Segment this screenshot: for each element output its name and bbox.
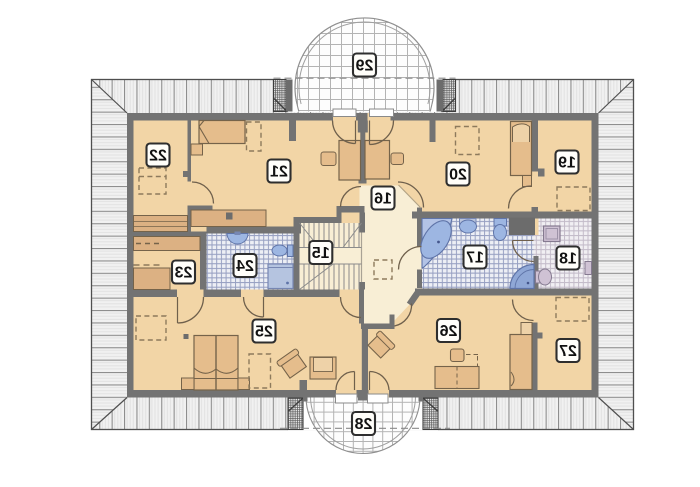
svg-text:16: 16 bbox=[374, 191, 392, 208]
svg-text:29: 29 bbox=[356, 58, 374, 75]
svg-text:22: 22 bbox=[149, 148, 167, 165]
svg-text:26: 26 bbox=[440, 323, 458, 340]
svg-text:15: 15 bbox=[312, 245, 330, 262]
svg-text:17: 17 bbox=[466, 250, 484, 267]
svg-text:23: 23 bbox=[175, 265, 193, 282]
svg-text:28: 28 bbox=[355, 416, 373, 433]
svg-text:18: 18 bbox=[559, 251, 577, 268]
svg-text:24: 24 bbox=[236, 258, 254, 275]
svg-text:20: 20 bbox=[449, 167, 467, 184]
svg-text:25: 25 bbox=[255, 324, 273, 341]
svg-text:19: 19 bbox=[558, 155, 576, 172]
svg-text:27: 27 bbox=[559, 343, 577, 360]
svg-text:21: 21 bbox=[270, 164, 288, 181]
